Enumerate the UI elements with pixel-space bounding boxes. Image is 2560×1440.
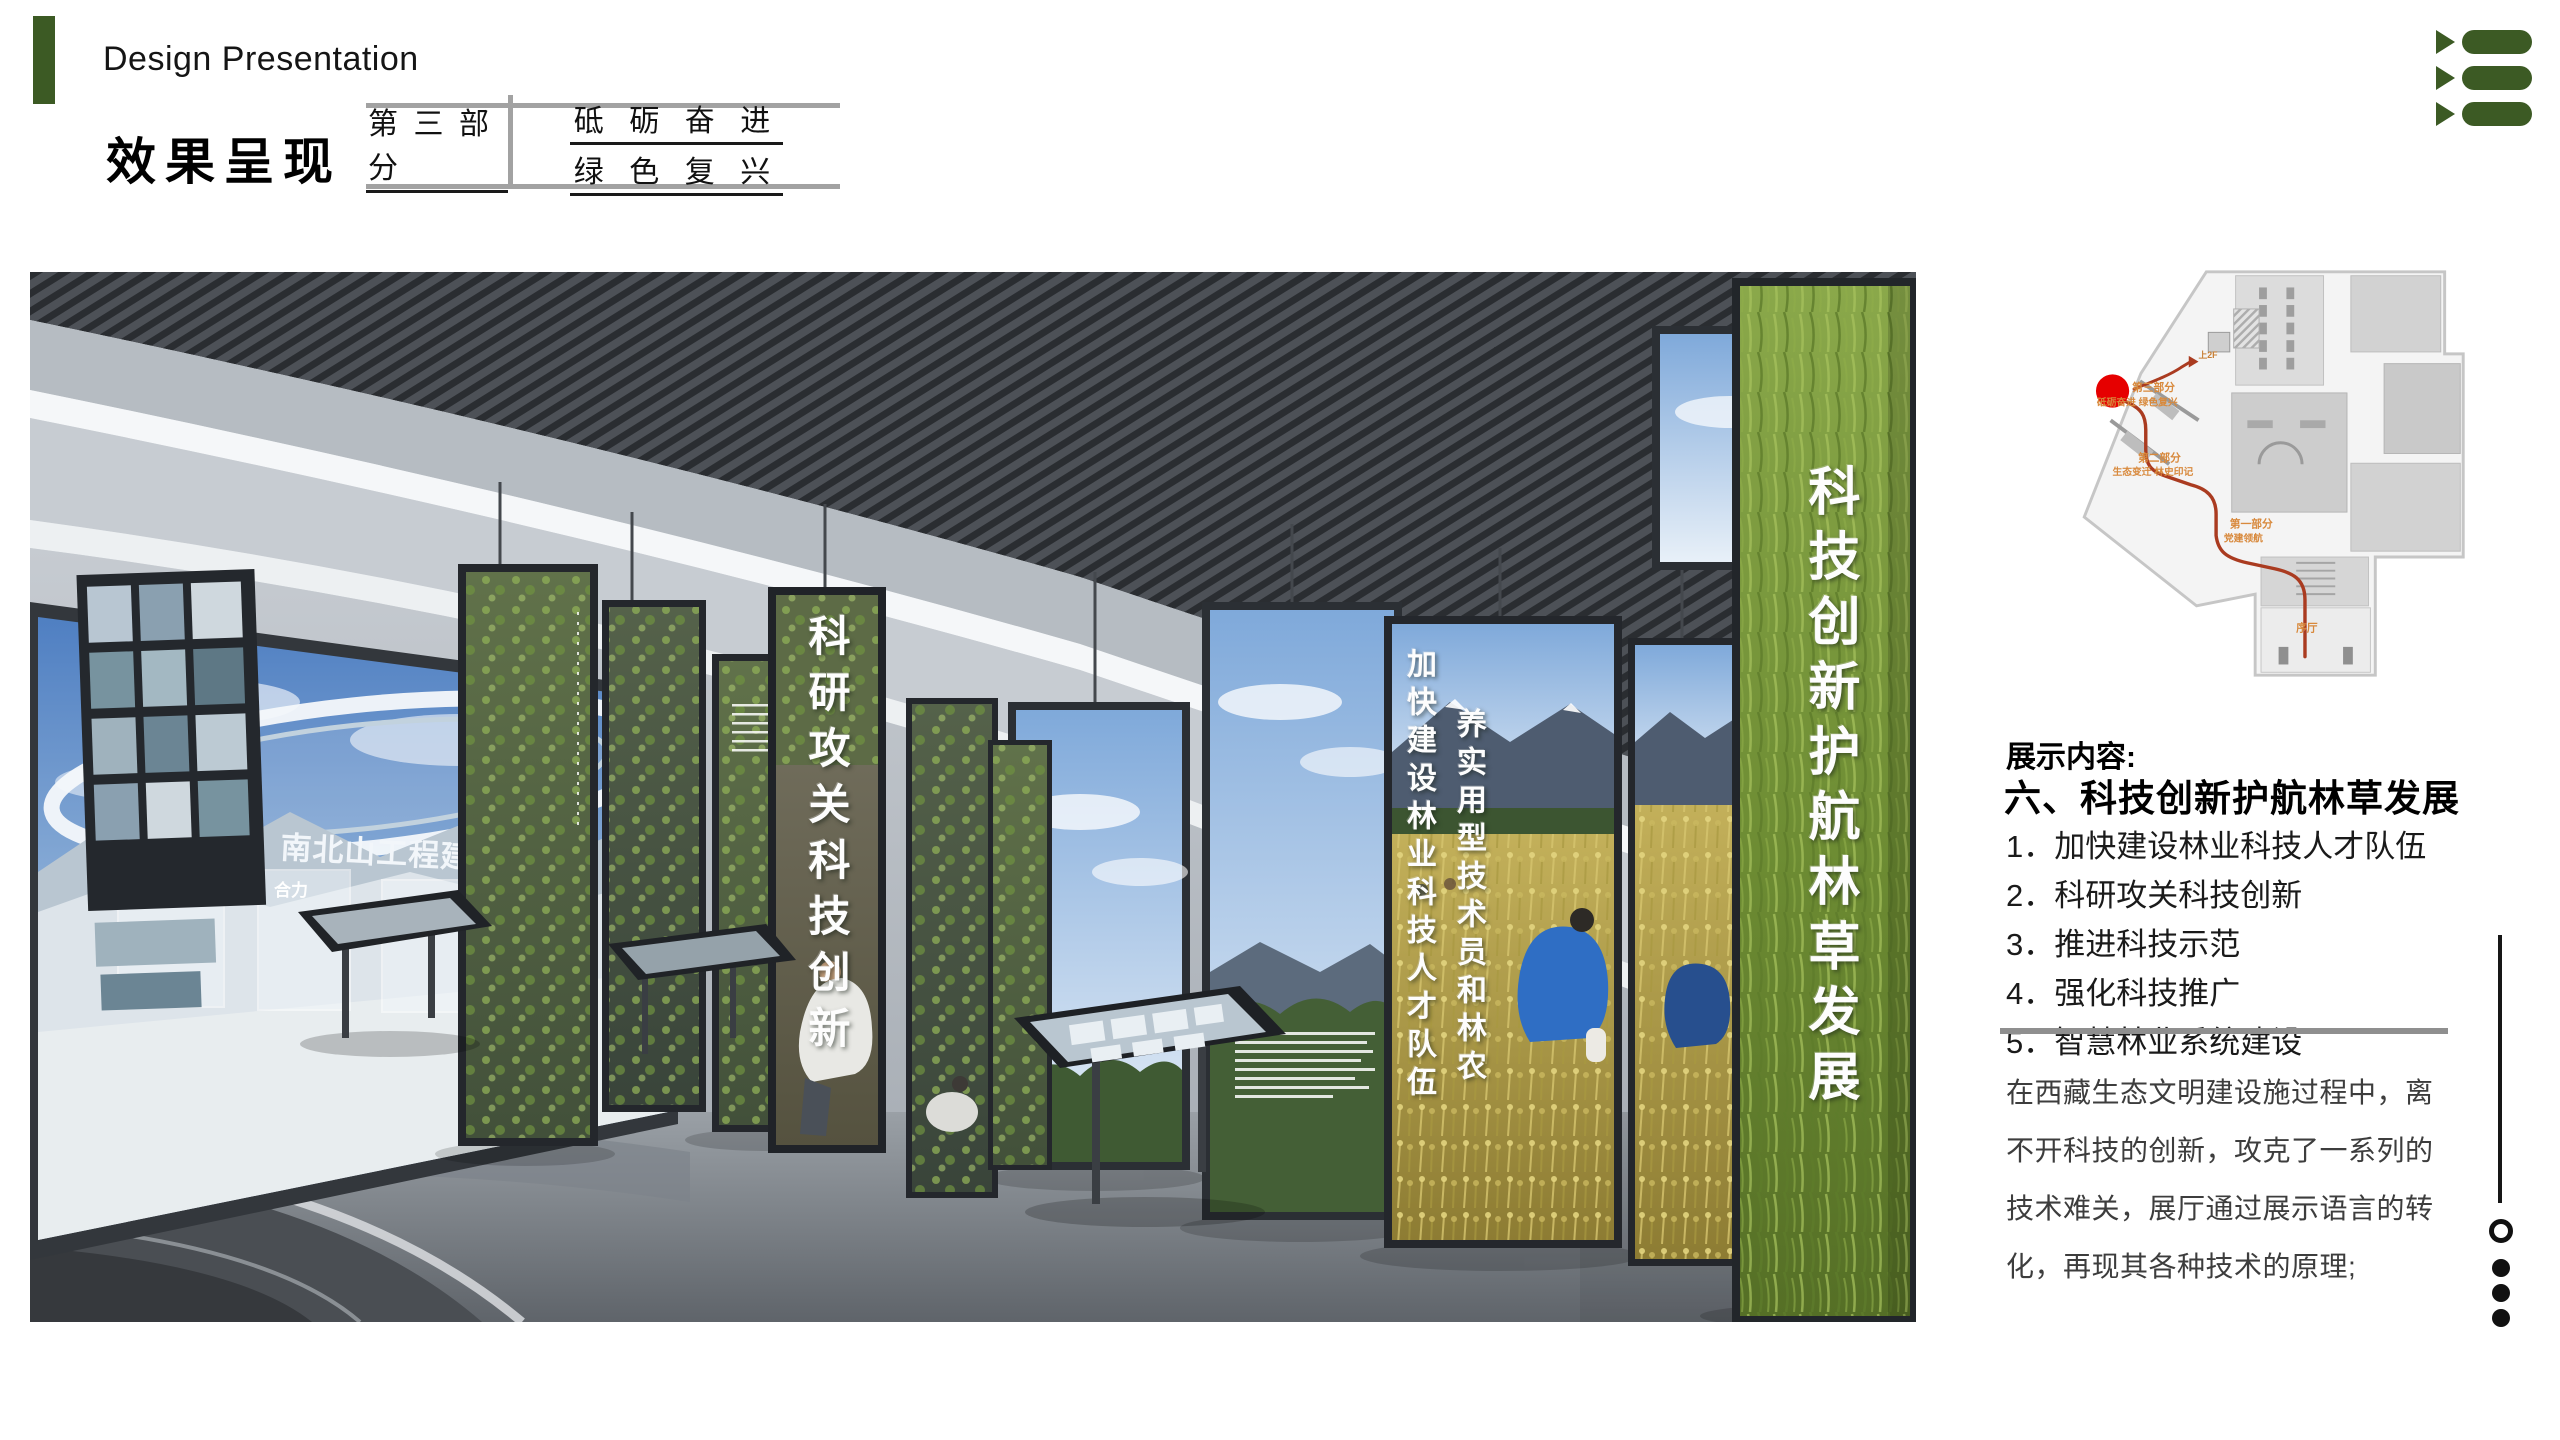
pager-dot[interactable]	[2492, 1259, 2510, 1277]
vertical-rule	[2498, 935, 2502, 1203]
content-item: 5．智慧林业系统建设	[2006, 1018, 2506, 1067]
part-label-cell: 第 三 部 分	[366, 108, 508, 184]
slogan-line2: 绿 色 复 兴	[570, 147, 784, 196]
plan-label-part3: 第三部分	[2132, 381, 2175, 394]
pager-dot[interactable]	[2492, 1284, 2510, 1302]
list-menu-icon[interactable]	[2436, 30, 2546, 126]
content-item: 3．推进科技示范	[2006, 920, 2506, 969]
content-item: 4．强化科技推广	[2006, 969, 2506, 1018]
content-item: 2．科研攻关科技创新	[2006, 871, 2506, 920]
list-row-icon	[2436, 66, 2546, 90]
exhibition-scene: 南北山工程建设过程 Construc 谋划 合力	[30, 272, 1916, 1322]
separator-line	[2000, 1028, 2448, 1034]
plan-label-part2: 第二部分	[2138, 451, 2181, 464]
plan-label-part3-sub: 砥砺奋进 绿色复兴	[2097, 396, 2178, 409]
list-row-icon	[2436, 30, 2546, 54]
accent-bar	[33, 16, 55, 104]
pillar-text-talent-col2: 养实用型技术员和林农	[1446, 708, 1490, 1088]
pillar-text-research: 科研攻关科技创新	[796, 614, 857, 1062]
pager-dot[interactable]	[2492, 1309, 2510, 1327]
pager	[2488, 1219, 2514, 1334]
plan-label-part1-sub: 党建领航	[2224, 531, 2263, 544]
plan-label-part1: 第一部分	[2230, 518, 2273, 531]
pager-dot-active[interactable]	[2489, 1219, 2513, 1243]
floor-plan-drawing: 第三部分 砥砺奋进 绿色复兴 第二部分 生态变迁 林史印记 第一部分 党建领航 …	[2052, 258, 2472, 690]
content-item: 1．加快建设林业科技人才队伍	[2006, 822, 2506, 871]
content-heading: 六、科技创新护航林草发展	[2004, 768, 2460, 822]
description-paragraph: 在西藏生态文明建设施过程中，离不开科技的创新，攻克了一系列的技术难关，展厅通过展…	[2006, 1064, 2458, 1296]
plan-label-lobby: 序厅	[2296, 621, 2318, 634]
pillar-text-theme: 科技创新护航林草发展	[1792, 464, 1867, 1114]
pillar-text-talent-col1: 加快建设林业科技人才队伍	[1396, 648, 1440, 1104]
plan-label-part2-sub: 生态变迁 林史印记	[2113, 465, 2194, 478]
slogan-line1: 砥 砺 奋 进	[570, 96, 784, 145]
plan-label-up2f: 上2F	[2199, 349, 2219, 360]
screen-tag-2: 合力	[274, 880, 308, 900]
part-label: 第 三 部 分	[366, 99, 508, 193]
exhibition-render-image: 南北山工程建设过程 Construc 谋划 合力	[30, 272, 1916, 1322]
list-row-icon	[2436, 102, 2546, 126]
floor-plan: 第三部分 砥砺奋进 绿色复兴 第二部分 生态变迁 林史印记 第一部分 党建领航 …	[2052, 258, 2472, 690]
page-title: 效果呈现	[106, 122, 342, 194]
part-header-table: 第 三 部 分 砥 砺 奋 进 绿 色 复 兴	[366, 103, 840, 189]
brand-title: Design Presentation	[103, 40, 419, 79]
slide: Design Presentation 效果呈现 第 三 部 分 砥 砺 奋 进…	[0, 0, 2560, 1440]
slogan-cell: 砥 砺 奋 进 绿 色 复 兴	[513, 108, 840, 184]
